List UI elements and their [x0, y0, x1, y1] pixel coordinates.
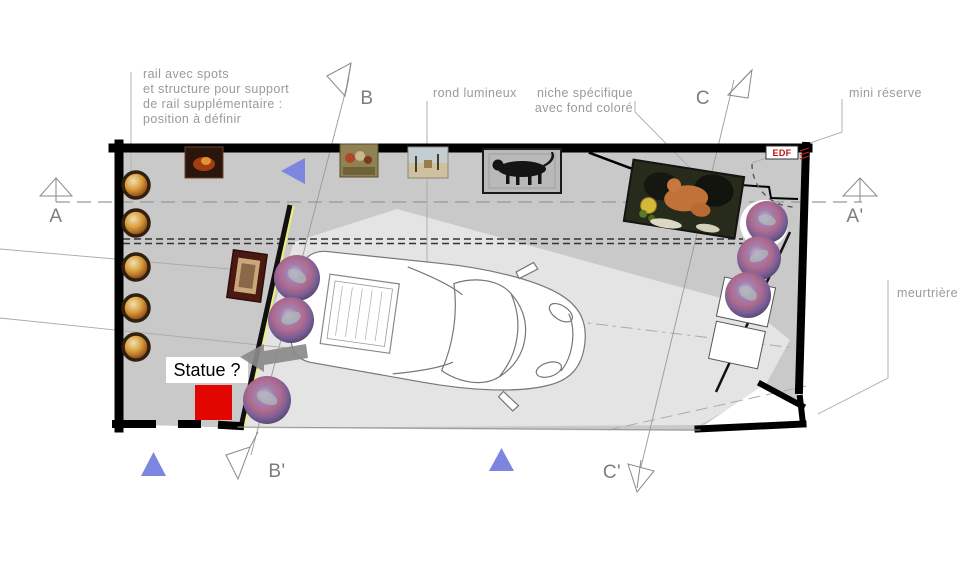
round-plate — [123, 172, 149, 198]
floor-plan-page: EDF — [0, 0, 969, 570]
blue-triangle-up-2 — [489, 448, 514, 471]
section-label-b-prime: B' — [268, 461, 285, 482]
mosaic-disc — [268, 297, 314, 343]
section-label-a-prime: A' — [846, 206, 863, 227]
meurtriere-leader — [818, 280, 888, 414]
section-label-c: C — [696, 88, 710, 109]
niche-label-line-2: avec fond coloré — [535, 101, 633, 115]
painting-black-panther — [483, 149, 561, 193]
round-plate — [123, 295, 149, 321]
mosaic-disc — [274, 255, 320, 301]
mosaic-disc — [243, 376, 291, 424]
edf-label: EDF — [773, 148, 792, 158]
floor-plan-drawing: EDF — [0, 0, 969, 570]
mosaic-disc — [725, 272, 771, 318]
section-marker-c: C — [696, 70, 752, 109]
wall-bottom-right — [698, 424, 803, 429]
meurtriere-label: meurtrière — [897, 286, 958, 300]
blue-triangle-up-1 — [141, 452, 166, 476]
rail-note-line-2: et structure pour support — [143, 82, 289, 96]
painting-framed-small — [227, 250, 267, 302]
wall-bottom-left-3 — [222, 425, 240, 426]
painting-winter-landscape — [408, 147, 448, 178]
section-marker-b: B — [327, 63, 374, 109]
section-label-c-prime: C' — [603, 462, 621, 483]
round-plate — [123, 210, 149, 236]
mini-reserve-label: mini réserve — [849, 86, 922, 100]
painting-fire-scene — [185, 147, 223, 178]
round-plate — [123, 334, 149, 360]
section-marker-c-prime: C' — [603, 460, 654, 492]
rail-note-line-4: position à définir — [143, 112, 241, 126]
rail-note-line-3: de rail supplémentaire : — [143, 97, 283, 111]
niche-label-line-1: niche spécifique — [537, 86, 633, 100]
section-label-b: B — [360, 88, 373, 109]
section-label-a: A — [49, 206, 62, 227]
painting-classical-scene — [340, 144, 378, 177]
statue-label: Statue ? — [173, 360, 240, 380]
round-plate — [123, 254, 149, 280]
section-marker-b-prime: B' — [226, 432, 286, 482]
rail-note-line-1: rail avec spots — [143, 67, 229, 81]
rond-lumineux-label: rond lumineux — [433, 86, 517, 100]
statue-red-square — [195, 385, 232, 420]
mosaic-disc — [746, 201, 788, 243]
